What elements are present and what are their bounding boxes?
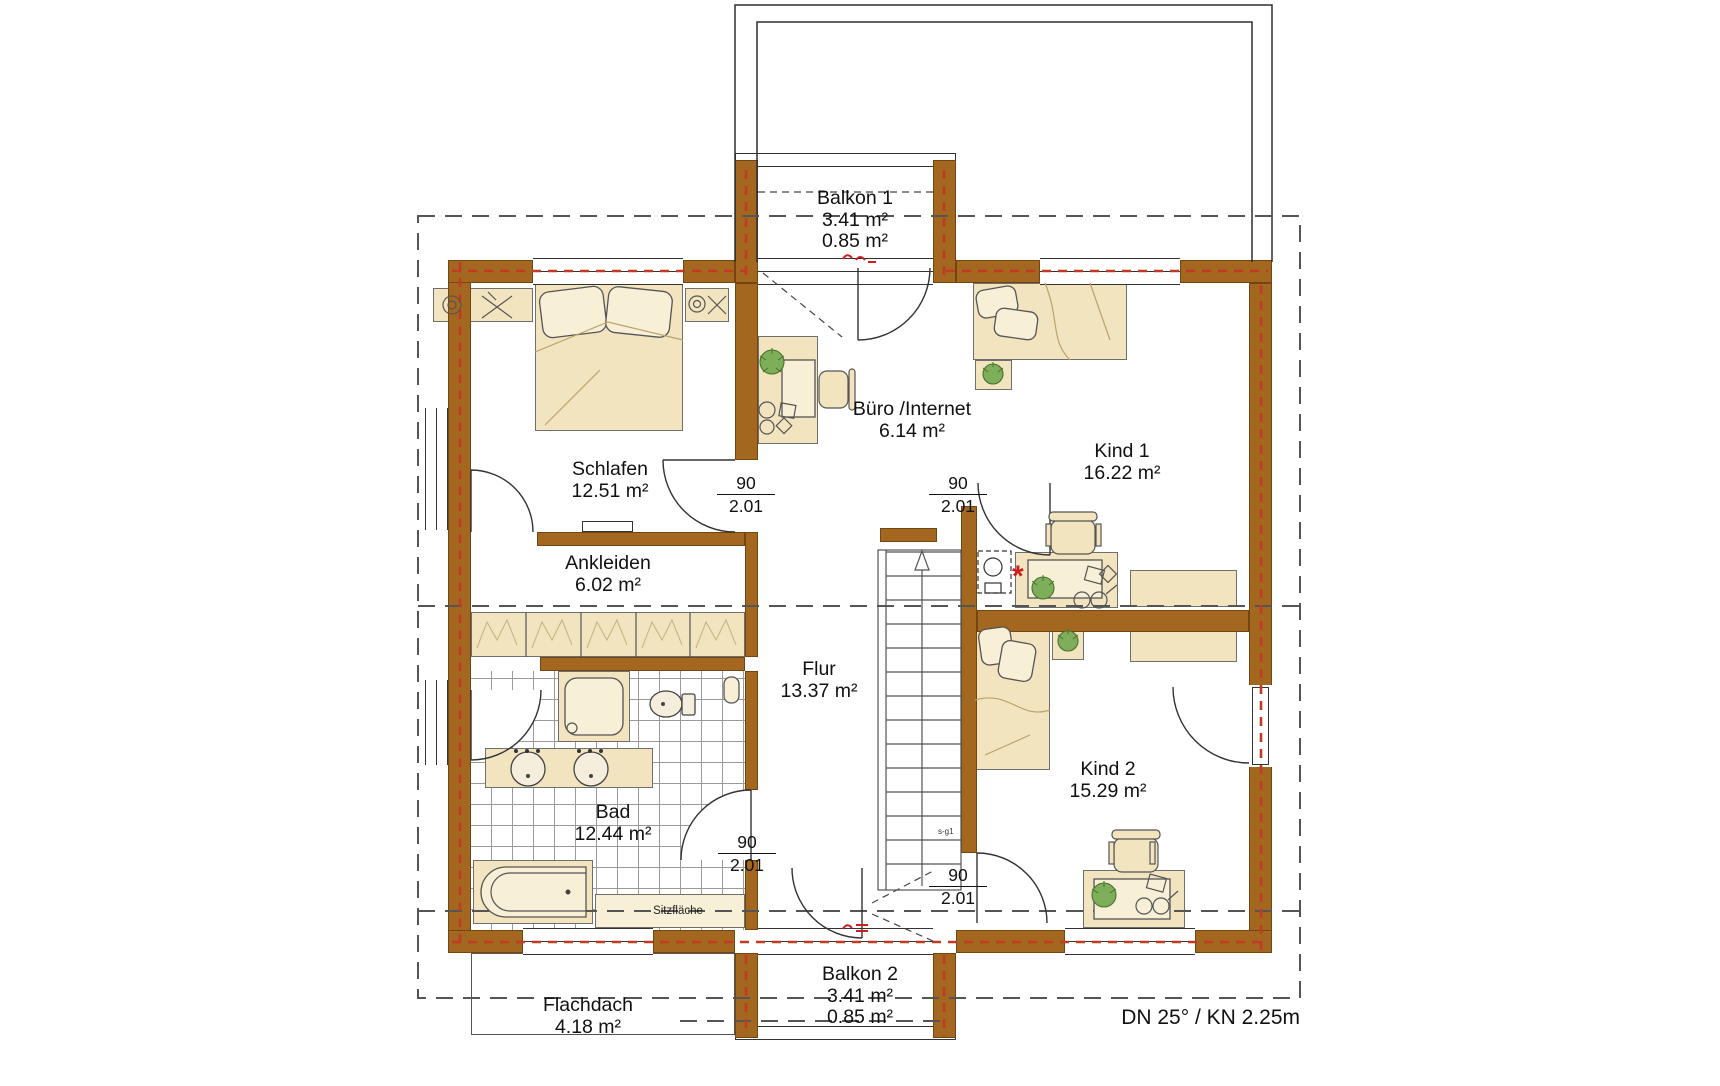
room-label-kind1: Kind 1 16.22 m² (1084, 441, 1161, 484)
room-label-balkon1: Balkon 1 3.41 m² 0.85 m² (817, 188, 893, 253)
room-label-bad: Bad 12.44 m² (575, 802, 652, 845)
door-width: 90 (717, 474, 775, 493)
room-name: Balkon 2 (822, 964, 898, 986)
room-name: Flur (781, 659, 858, 681)
door-height: 2.01 (929, 497, 987, 516)
room-area: 15.29 m² (1070, 781, 1147, 803)
room-label-buero: Büro /Internet 6.14 m² (853, 399, 971, 442)
door-width: 90 (718, 833, 776, 852)
room-area: 3.41 m² (822, 986, 898, 1008)
fraction-line (717, 494, 775, 495)
room-area: 3.41 m² (817, 210, 893, 232)
door-height: 2.01 (718, 856, 776, 875)
room-name: Bad (575, 802, 652, 824)
room-area: 12.51 m² (572, 481, 649, 503)
room-name: Balkon 1 (817, 188, 893, 210)
door-width: 90 (929, 866, 987, 885)
room-label-flachdach: Flachdach 4.18 m² (543, 995, 633, 1038)
room-label-kind2: Kind 2 15.29 m² (1070, 759, 1147, 802)
room-area2: 0.85 m² (817, 231, 893, 253)
plan-linework (0, 0, 1720, 1086)
door-size-label: 90 2.01 (929, 866, 987, 908)
door-size-label: 90 2.01 (718, 833, 776, 875)
room-name: Flachdach (543, 995, 633, 1017)
room-area: 6.02 m² (565, 575, 651, 597)
door-width: 90 (929, 474, 987, 493)
door-size-label: 90 2.01 (717, 474, 775, 516)
fraction-line (929, 886, 987, 887)
door-height: 2.01 (717, 497, 775, 516)
room-area: 6.14 m² (853, 421, 971, 443)
seat-surface-label: Sitzfläche (653, 905, 703, 917)
room-label-schlafen: Schlafen 12.51 m² (572, 459, 649, 502)
floor-plan-canvas: Balkon 1 3.41 m² 0.85 m² Büro /Internet … (0, 0, 1720, 1086)
fraction-line (929, 494, 987, 495)
roof-note: DN 25° / KN 2.25m (1121, 1006, 1300, 1030)
room-name: Büro /Internet (853, 399, 971, 421)
red-marker-asterisk: * (1012, 567, 1024, 587)
room-label-balkon2: Balkon 2 3.41 m² 0.85 m² (822, 964, 898, 1029)
room-name: Ankleiden (565, 553, 651, 575)
room-area: 4.18 m² (543, 1017, 633, 1039)
room-name: Kind 2 (1070, 759, 1147, 781)
room-label-flur: Flur 13.37 m² (781, 659, 858, 702)
room-area: 13.37 m² (781, 681, 858, 703)
door-height: 2.01 (929, 889, 987, 908)
room-name: Schlafen (572, 459, 649, 481)
door-size-label: 90 2.01 (929, 474, 987, 516)
room-area: 16.22 m² (1084, 463, 1161, 485)
room-label-ankleiden: Ankleiden 6.02 m² (565, 553, 651, 596)
room-area2: 0.85 m² (822, 1007, 898, 1029)
room-area: 12.44 m² (575, 824, 652, 846)
room-name: Kind 1 (1084, 441, 1161, 463)
stair-note: s-g1 (938, 827, 954, 836)
fraction-line (718, 853, 776, 854)
